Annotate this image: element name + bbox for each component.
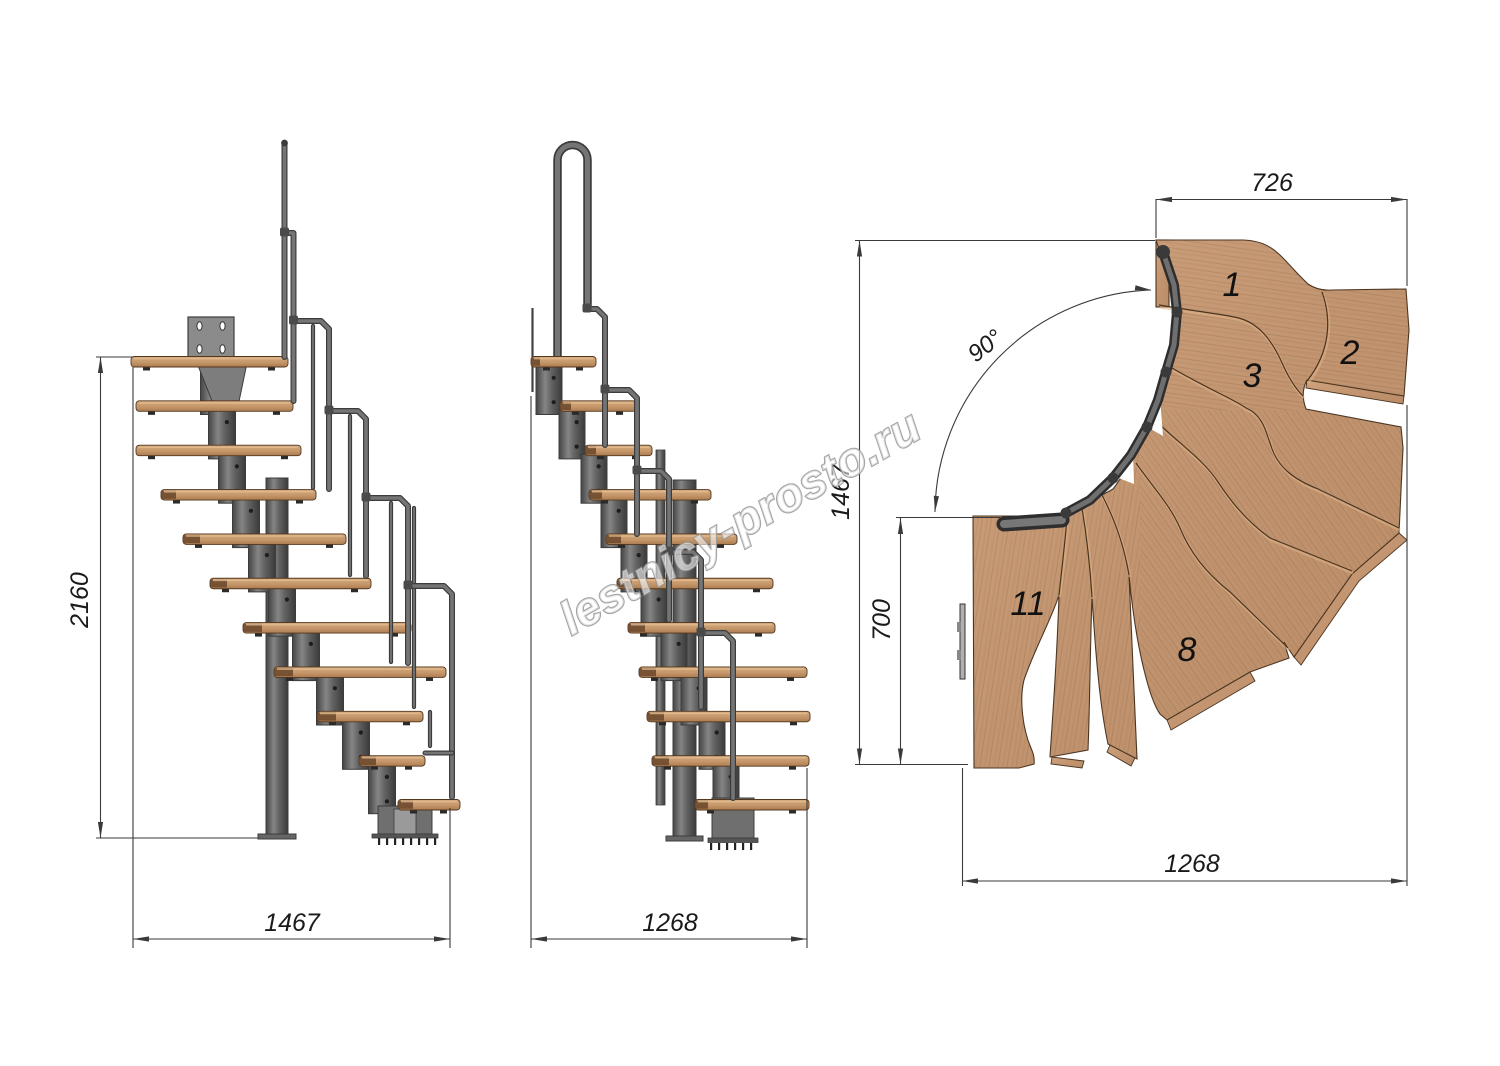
svg-text:700: 700 xyxy=(868,599,896,641)
svg-text:8: 8 xyxy=(1178,631,1197,669)
svg-text:1467: 1467 xyxy=(264,909,321,937)
svg-text:726: 726 xyxy=(1251,169,1293,197)
svg-text:2: 2 xyxy=(1340,334,1360,372)
svg-text:11: 11 xyxy=(1010,585,1045,623)
svg-text:2160: 2160 xyxy=(66,572,94,629)
svg-text:1268: 1268 xyxy=(1164,850,1220,878)
svg-text:1268: 1268 xyxy=(642,909,698,937)
svg-text:1: 1 xyxy=(1223,266,1242,304)
svg-text:3: 3 xyxy=(1243,357,1262,395)
